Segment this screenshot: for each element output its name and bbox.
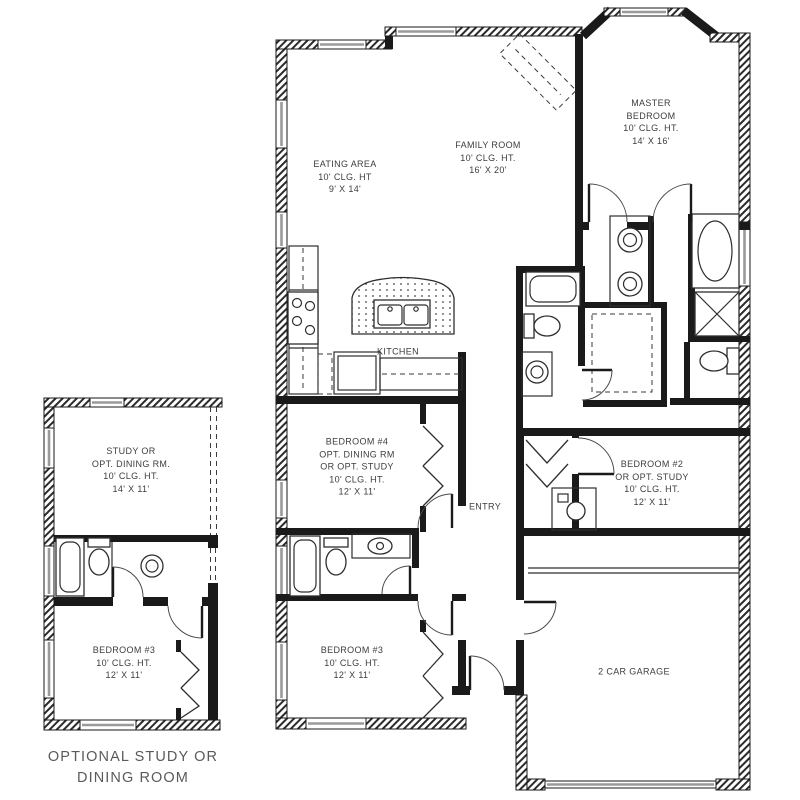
main-hall-toilet-icon (324, 538, 348, 575)
optional-toilet-icon (88, 538, 110, 575)
bedroom-3-label: BEDROOM #3 10' CLG. HT. 12' X 11' (321, 644, 384, 682)
optional-closet-doors (181, 652, 199, 718)
eating-area-label: EATING AREA 10' CLG. HT 9' X 14' (313, 158, 376, 196)
family-room-label: FAMILY ROOM 10' CLG. HT. 16' X 20' (455, 139, 521, 177)
vanity-sink-icon (618, 272, 642, 296)
optional-sink-icon (141, 555, 163, 577)
vanity-sink-icon (618, 228, 642, 252)
hall-sink-icon (522, 352, 552, 396)
entry-label: ENTRY (469, 501, 501, 514)
shower-icon (695, 292, 739, 336)
master-bedroom-label: MASTER BEDROOM 10' CLG. HT. 14' X 16' (623, 97, 678, 147)
main-hall-sink-icon (352, 534, 410, 558)
floor-plan-sheet: EATING AREA 10' CLG. HT 9' X 14' FAMILY … (0, 0, 800, 800)
bedroom-2-label: BEDROOM #2 OR OPT. STUDY 10' CLG. HT. 12… (615, 458, 689, 508)
main-interior-walls (276, 34, 750, 695)
kitchen-island (352, 278, 454, 335)
hall-toilet-icon (524, 314, 560, 338)
master-toilet-icon (700, 348, 739, 374)
closet-doors (423, 426, 568, 718)
bedroom-4-label: BEDROOM #4 OPT. DINING RM OR OPT. STUDY … (319, 436, 394, 499)
cooktop-icon (288, 292, 318, 344)
optional-plan-caption: OPTIONAL STUDY OR DINING ROOM (48, 747, 218, 789)
hall-bathtub-icon (526, 272, 580, 306)
optional-bathtub-icon (56, 538, 84, 596)
optional-bath-fixtures (56, 538, 163, 596)
optional-fireplace (500, 34, 576, 110)
double-sink-icon (374, 300, 430, 328)
optional-bedroom-3-label: BEDROOM #3 10' CLG. HT. 12' X 11' (93, 644, 156, 682)
kitchen-fixtures (288, 246, 462, 394)
door-swings (382, 184, 691, 690)
garage-label: 2 CAR GARAGE (598, 666, 670, 679)
pantry (318, 354, 332, 394)
refrigerator-icon (334, 352, 380, 394)
main-hall-bathtub-icon (290, 536, 320, 596)
closet-shelving (592, 314, 652, 392)
garden-tub-icon (692, 214, 739, 288)
optional-study-label: STUDY OR OPT. DINING RM. 10' CLG. HT. 14… (92, 445, 170, 495)
kitchen-label: KITCHEN (377, 346, 419, 359)
